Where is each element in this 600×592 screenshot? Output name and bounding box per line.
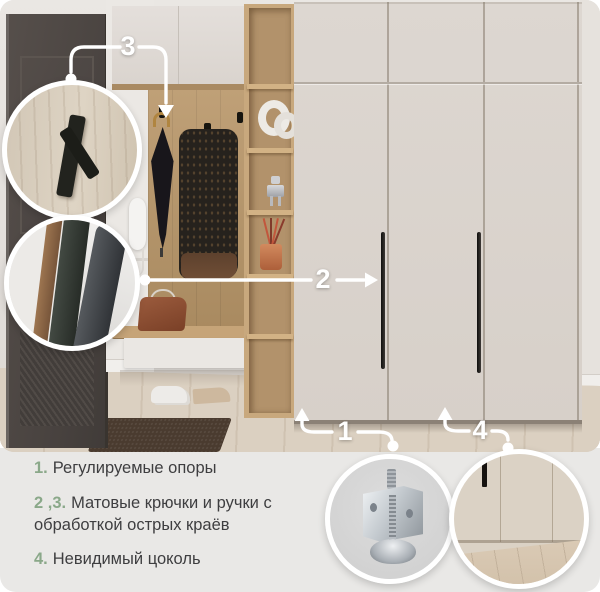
door-seam	[577, 2, 579, 424]
reed-diffuser	[260, 244, 282, 270]
shelf	[247, 274, 293, 279]
inset-plinth-closeup	[449, 449, 589, 589]
hanging-coat	[179, 129, 238, 279]
feature-list: 1.Регулируемые опоры 2 ,3.Матовые крючки…	[34, 458, 364, 571]
leather-bag	[138, 297, 188, 331]
umbrella-tip	[160, 248, 163, 257]
bench-shadow	[120, 370, 256, 386]
doormat-rug	[88, 418, 232, 452]
shelf	[247, 210, 293, 215]
umbrella-handle	[153, 112, 170, 127]
inset-hook-closeup	[2, 80, 142, 220]
upper-row-seam	[294, 82, 582, 84]
figurine	[265, 176, 287, 206]
door-seam	[387, 2, 389, 424]
callout-label-3: 3	[115, 31, 141, 62]
callout-label-4: 4	[467, 415, 493, 446]
side-hook	[237, 112, 243, 123]
cabinet-seam	[178, 6, 179, 90]
feature-number: 4.	[34, 550, 48, 568]
feature-number: 2 ,3.	[34, 494, 66, 512]
feature-text: Регулируемые опоры	[53, 459, 217, 477]
callout-label-2: 2	[310, 264, 336, 295]
shelf	[247, 334, 293, 339]
feature-item-4: 4.Невидимый цоколь	[34, 549, 364, 571]
inset-handle-edge-closeup	[4, 215, 140, 351]
product-card: 1.Регулируемые опоры 2 ,3.Матовые крючки…	[0, 0, 600, 592]
open-shelf-column	[244, 4, 300, 418]
door-handle	[381, 232, 385, 369]
feature-number: 1.	[34, 459, 48, 477]
door-seam	[483, 2, 485, 424]
sneakers	[151, 386, 187, 403]
inset-adjustable-foot-closeup	[325, 454, 455, 584]
shelf	[247, 84, 293, 89]
feature-item-1: 1.Регулируемые опоры	[34, 458, 364, 480]
feature-text: Невидимый цоколь	[53, 550, 201, 568]
right-wall	[580, 0, 600, 390]
heels	[193, 387, 231, 405]
bench-drawer	[124, 338, 254, 368]
feature-item-2-3: 2 ,3.Матовые крючки и ручки с обработкой…	[34, 493, 364, 537]
wardrobe	[294, 2, 582, 424]
callout-label-1: 1	[332, 416, 358, 447]
shelf	[247, 148, 293, 153]
coat-hem	[181, 253, 237, 279]
feature-text: Матовые крючки и ручки с обработкой остр…	[34, 494, 272, 534]
door-handle	[477, 232, 481, 373]
intercom-handset	[129, 198, 146, 250]
